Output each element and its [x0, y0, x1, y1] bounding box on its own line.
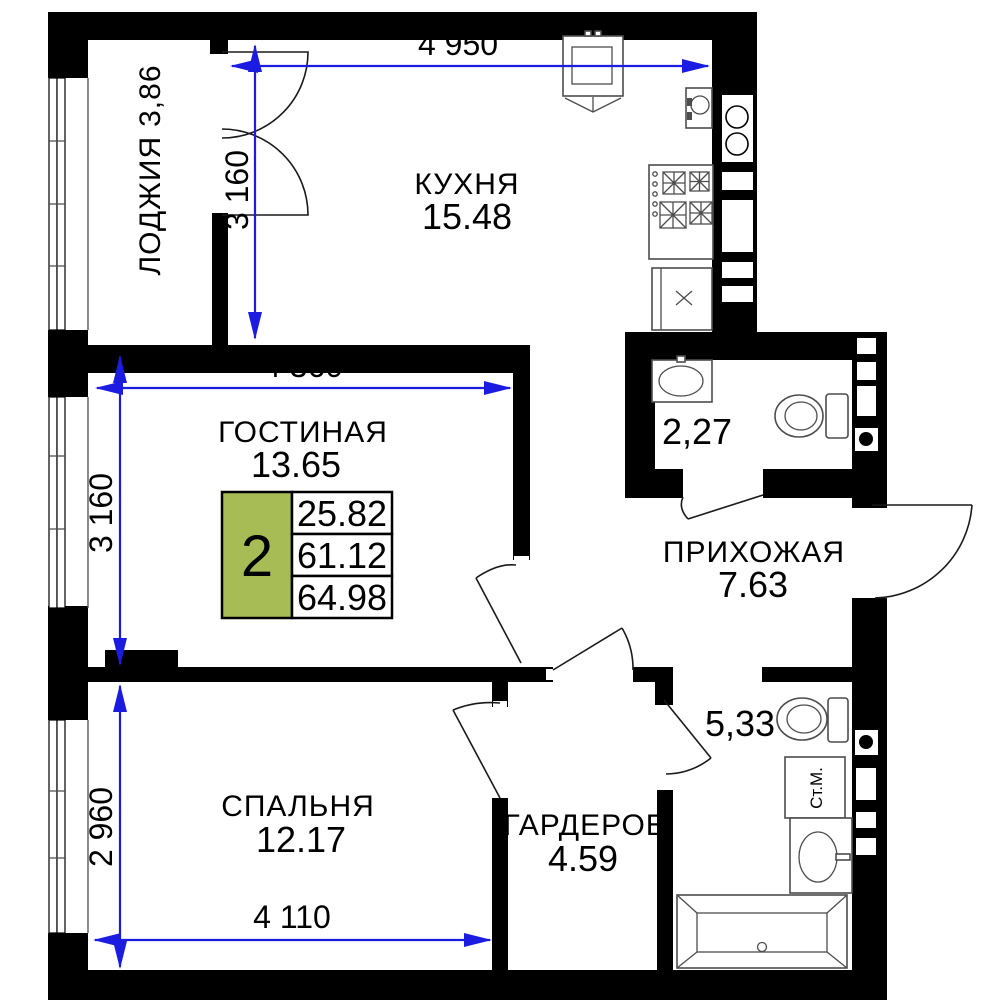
bathroom-small-door-icon	[681, 495, 763, 519]
bathtub-icon	[677, 895, 847, 968]
room-hallway-area: 7.63	[718, 564, 788, 605]
bathroom-large-door-icon	[664, 700, 711, 774]
room-loggia-label: ЛОДЖИЯ3,86	[134, 65, 167, 276]
summary-area-no-balcony: 61.12	[297, 535, 387, 576]
stove-icon	[649, 165, 713, 259]
summary-living-area: 25.82	[297, 493, 387, 534]
room-wardrobe-area: 4.59	[548, 838, 618, 879]
washing-machine-icon: Ст.М.	[785, 757, 845, 818]
floor-plan: Ст.М. 4 950 3 160 4 360 3 160 2 960 4 11…	[0, 0, 1000, 1000]
pipe-riser-icon	[859, 432, 873, 446]
wardrobe-door-icon	[553, 628, 633, 670]
living-door-icon	[476, 565, 521, 663]
bathroom-large-toilet-icon	[777, 698, 848, 742]
loggia-window-icon	[49, 78, 88, 330]
summary-box: 2 25.82 61.12 64.98	[222, 492, 392, 618]
boiler-icon	[686, 88, 712, 128]
bathroom-large-sink-icon	[790, 818, 852, 893]
dishwasher-icon	[652, 268, 712, 330]
summary-total-area: 64.98	[297, 577, 387, 618]
dim-kitchen-width: 4 950	[418, 26, 498, 62]
dim-kitchen-height: 3 160	[219, 150, 255, 230]
kitchen-sink-icon	[563, 31, 623, 112]
washing-machine-label: Ст.М.	[807, 767, 826, 809]
summary-rooms-count: 2	[241, 524, 273, 589]
dim-bedroom-height: 2 960	[83, 787, 119, 867]
room-bathroom-small-area: 2,27	[662, 411, 732, 452]
room-bedroom-area: 12.17	[256, 819, 346, 860]
bathroom-small-sink-icon	[652, 356, 712, 402]
dim-living-width: 4 360	[263, 348, 343, 384]
dim-bedroom-width: 4 110	[253, 899, 331, 935]
pipe-riser-icon	[859, 735, 873, 749]
dim-living-height: 3 160	[83, 473, 119, 553]
bedroom-door-icon	[453, 703, 500, 798]
room-kitchen-area: 15.48	[422, 196, 512, 237]
walls	[48, 12, 887, 1000]
room-living-area: 13.65	[251, 444, 341, 485]
floor-plan-page: Ст.М. 4 950 3 160 4 360 3 160 2 960 4 11…	[0, 0, 1000, 1000]
entrance-door-icon	[872, 505, 972, 598]
room-bathroom-large-area: 5,33	[705, 703, 775, 744]
bathroom-small-toilet-icon	[775, 394, 848, 438]
